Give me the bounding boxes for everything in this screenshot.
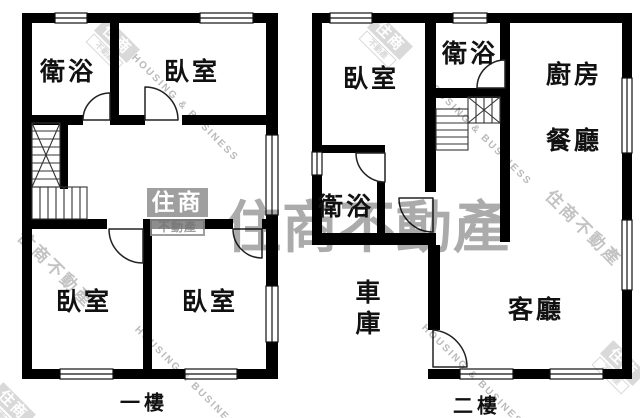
watermark-logo-center: 住商 不動產 [147,188,208,236]
door-bathroom-1f [83,93,110,120]
room-label-bathroom-top-2f: 衛浴 [442,34,498,70]
brand-logo-suffix: 不動產 [150,219,205,236]
floor-label-first: 一樓 [120,387,168,416]
room-label-dining-2f: 餐廳 [546,121,602,157]
brand-logo-box: 住商 [147,188,208,217]
room-label-bathroom-mid-2f: 衛浴 [318,187,374,223]
room-label-kitchen-2f: 廚房 [546,55,602,91]
room-label-bathroom-1f: 衛浴 [40,52,96,88]
room-label-bedroom-2f: 臥室 [343,59,399,95]
room-label-garage-2f: 車庫 [348,279,384,341]
room-label-living-2f: 客廳 [508,290,564,326]
room-label-bedroom-right-1f: 臥室 [182,282,238,318]
floor-label-second: 二樓 [453,390,501,418]
staircase-first-floor [32,123,87,219]
room-label-bedroom-top-1f: 臥室 [164,52,220,88]
floorplan-canvas: 住商不動產 住商 不動產 HOUSING & BUSINESS HOUSING … [0,0,640,418]
room-label-bedroom-left-1f: 臥室 [56,282,112,318]
door-bathroom-mid-2f [356,153,385,182]
door-bedroom-bl-1f [109,229,143,263]
